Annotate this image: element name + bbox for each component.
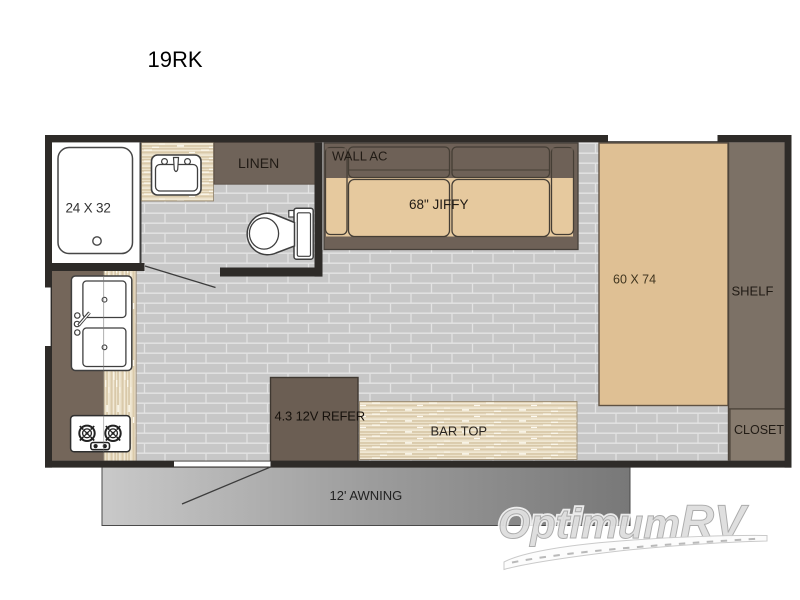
svg-text:CLOSET: CLOSET	[734, 423, 784, 437]
svg-text:WALL AC: WALL AC	[332, 149, 387, 164]
svg-text:60 X 74: 60 X 74	[613, 273, 656, 287]
svg-text:SHELF: SHELF	[732, 284, 774, 299]
svg-text:4.3 12V REFER: 4.3 12V REFER	[275, 409, 366, 424]
svg-text:LINEN: LINEN	[238, 155, 279, 171]
svg-text:68" JIFFY: 68" JIFFY	[409, 197, 469, 212]
svg-text:BAR TOP: BAR TOP	[431, 424, 488, 439]
svg-text:19RK: 19RK	[148, 47, 203, 72]
svg-text:24 X 32: 24 X 32	[66, 201, 111, 216]
svg-text:12' AWNING: 12' AWNING	[330, 488, 403, 503]
